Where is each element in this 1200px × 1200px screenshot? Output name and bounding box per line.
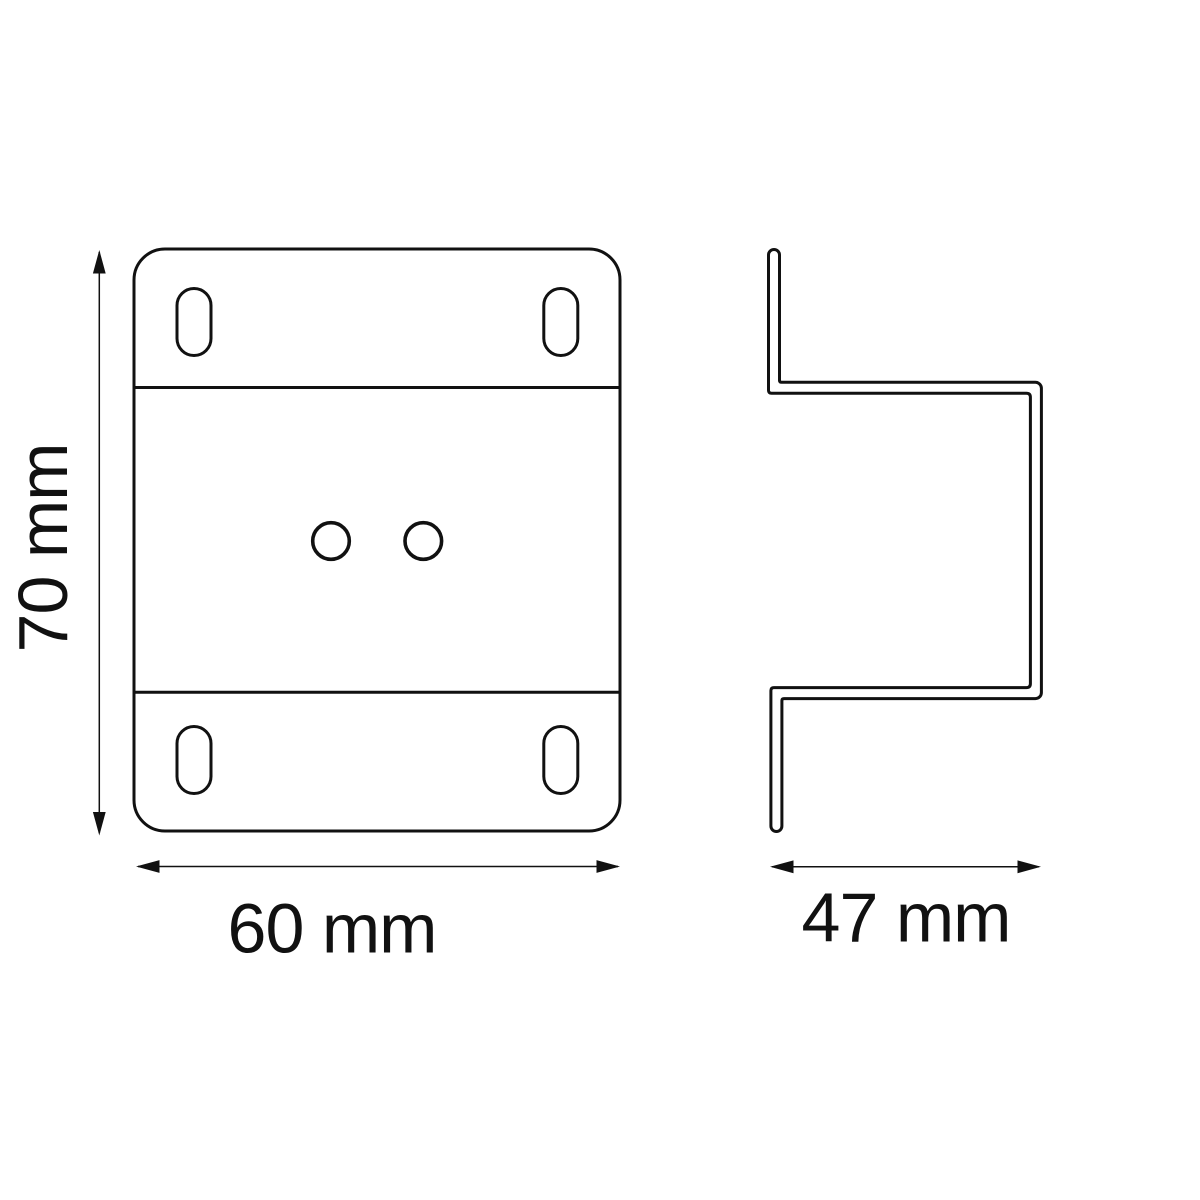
- svg-text:47 mm: 47 mm: [802, 879, 1011, 957]
- svg-text:60 mm: 60 mm: [228, 890, 437, 968]
- svg-text:70 mm: 70 mm: [4, 444, 82, 653]
